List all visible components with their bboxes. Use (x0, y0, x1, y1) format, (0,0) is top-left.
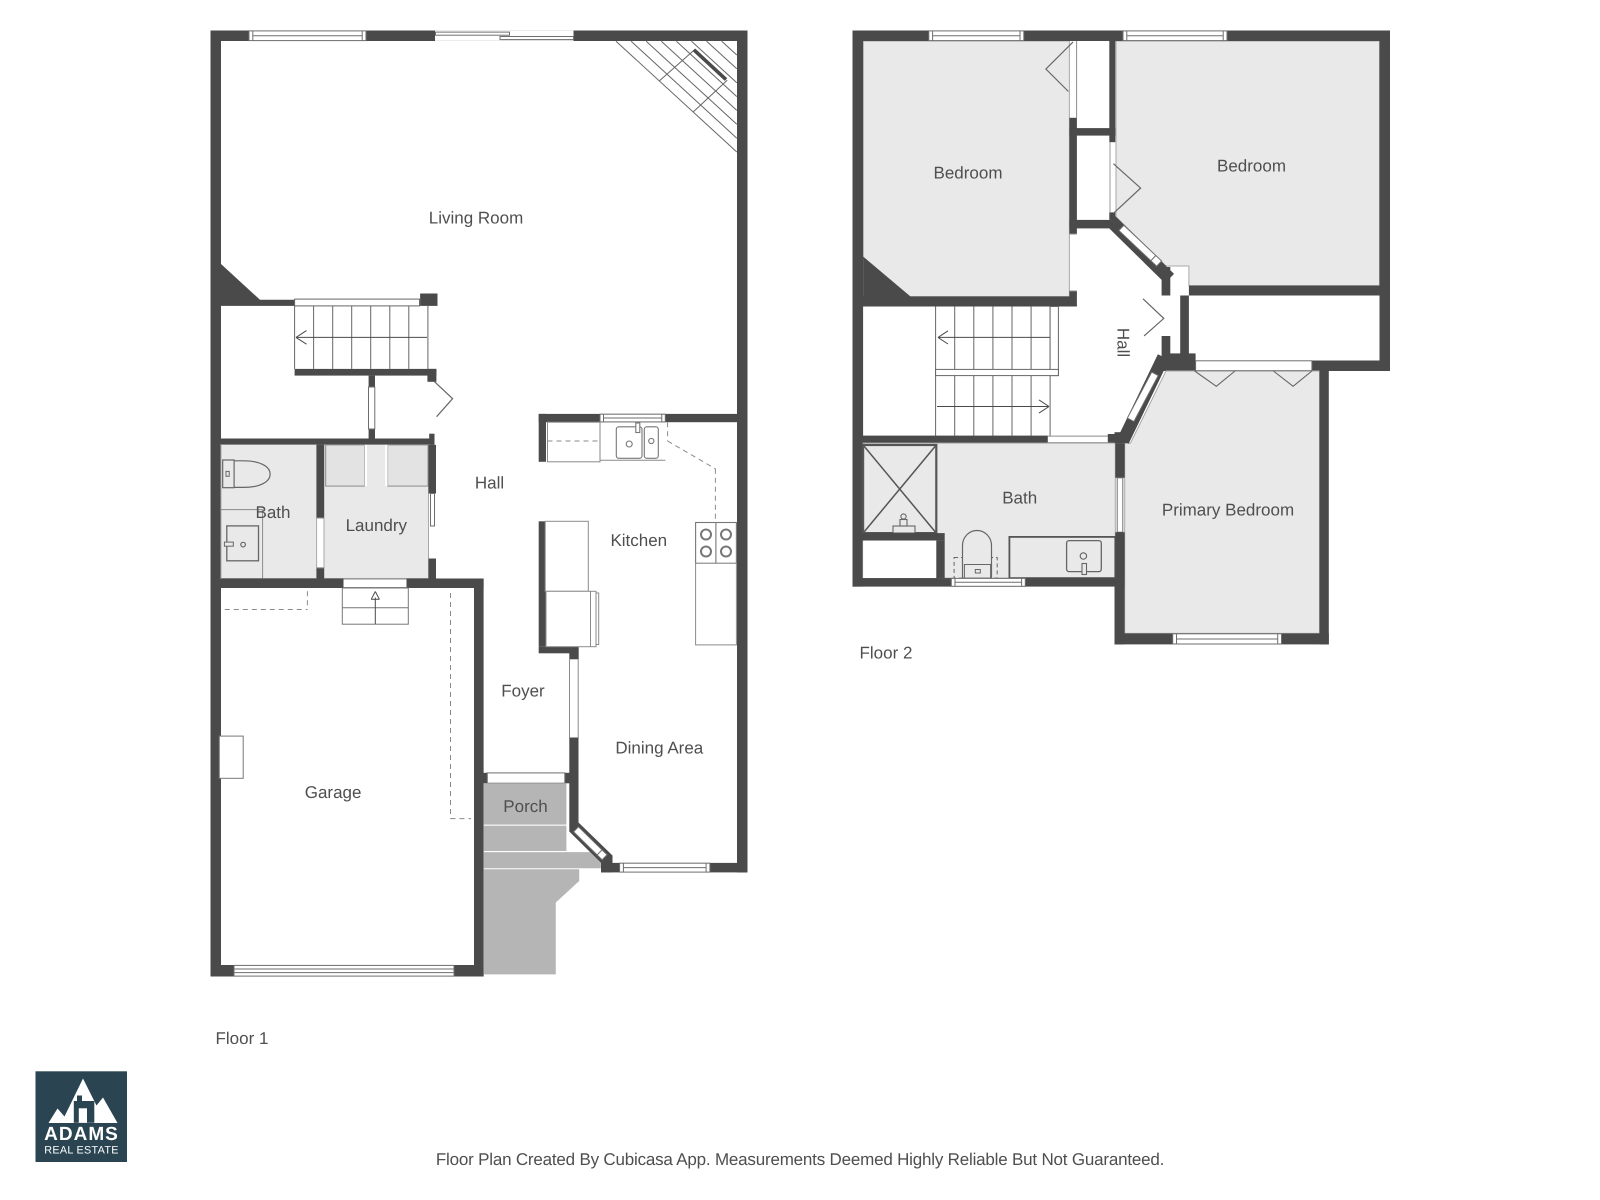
svg-text:Floor Plan Created By Cubicasa: Floor Plan Created By Cubicasa App. Meas… (436, 1150, 1164, 1169)
svg-text:Bath: Bath (1002, 489, 1037, 508)
svg-text:ADAMS: ADAMS (44, 1124, 119, 1145)
svg-text:REAL ESTATE: REAL ESTATE (44, 1145, 119, 1157)
svg-text:Garage: Garage (305, 783, 362, 802)
svg-text:Hall: Hall (475, 474, 504, 493)
svg-text:Bedroom: Bedroom (934, 164, 1003, 183)
svg-text:Bedroom: Bedroom (1217, 157, 1286, 176)
svg-text:Foyer: Foyer (501, 682, 545, 701)
svg-text:Bath: Bath (256, 503, 291, 522)
svg-text:Floor 1: Floor 1 (216, 1029, 269, 1048)
svg-text:Dining Area: Dining Area (615, 738, 703, 757)
svg-text:Floor 2: Floor 2 (860, 644, 913, 663)
svg-text:Laundry: Laundry (346, 516, 408, 535)
svg-text:Porch: Porch (503, 797, 547, 816)
svg-text:Kitchen: Kitchen (610, 531, 667, 550)
svg-text:Primary Bedroom: Primary Bedroom (1162, 501, 1294, 520)
svg-text:Living Room: Living Room (429, 209, 524, 228)
svg-text:Hall: Hall (1114, 328, 1133, 357)
